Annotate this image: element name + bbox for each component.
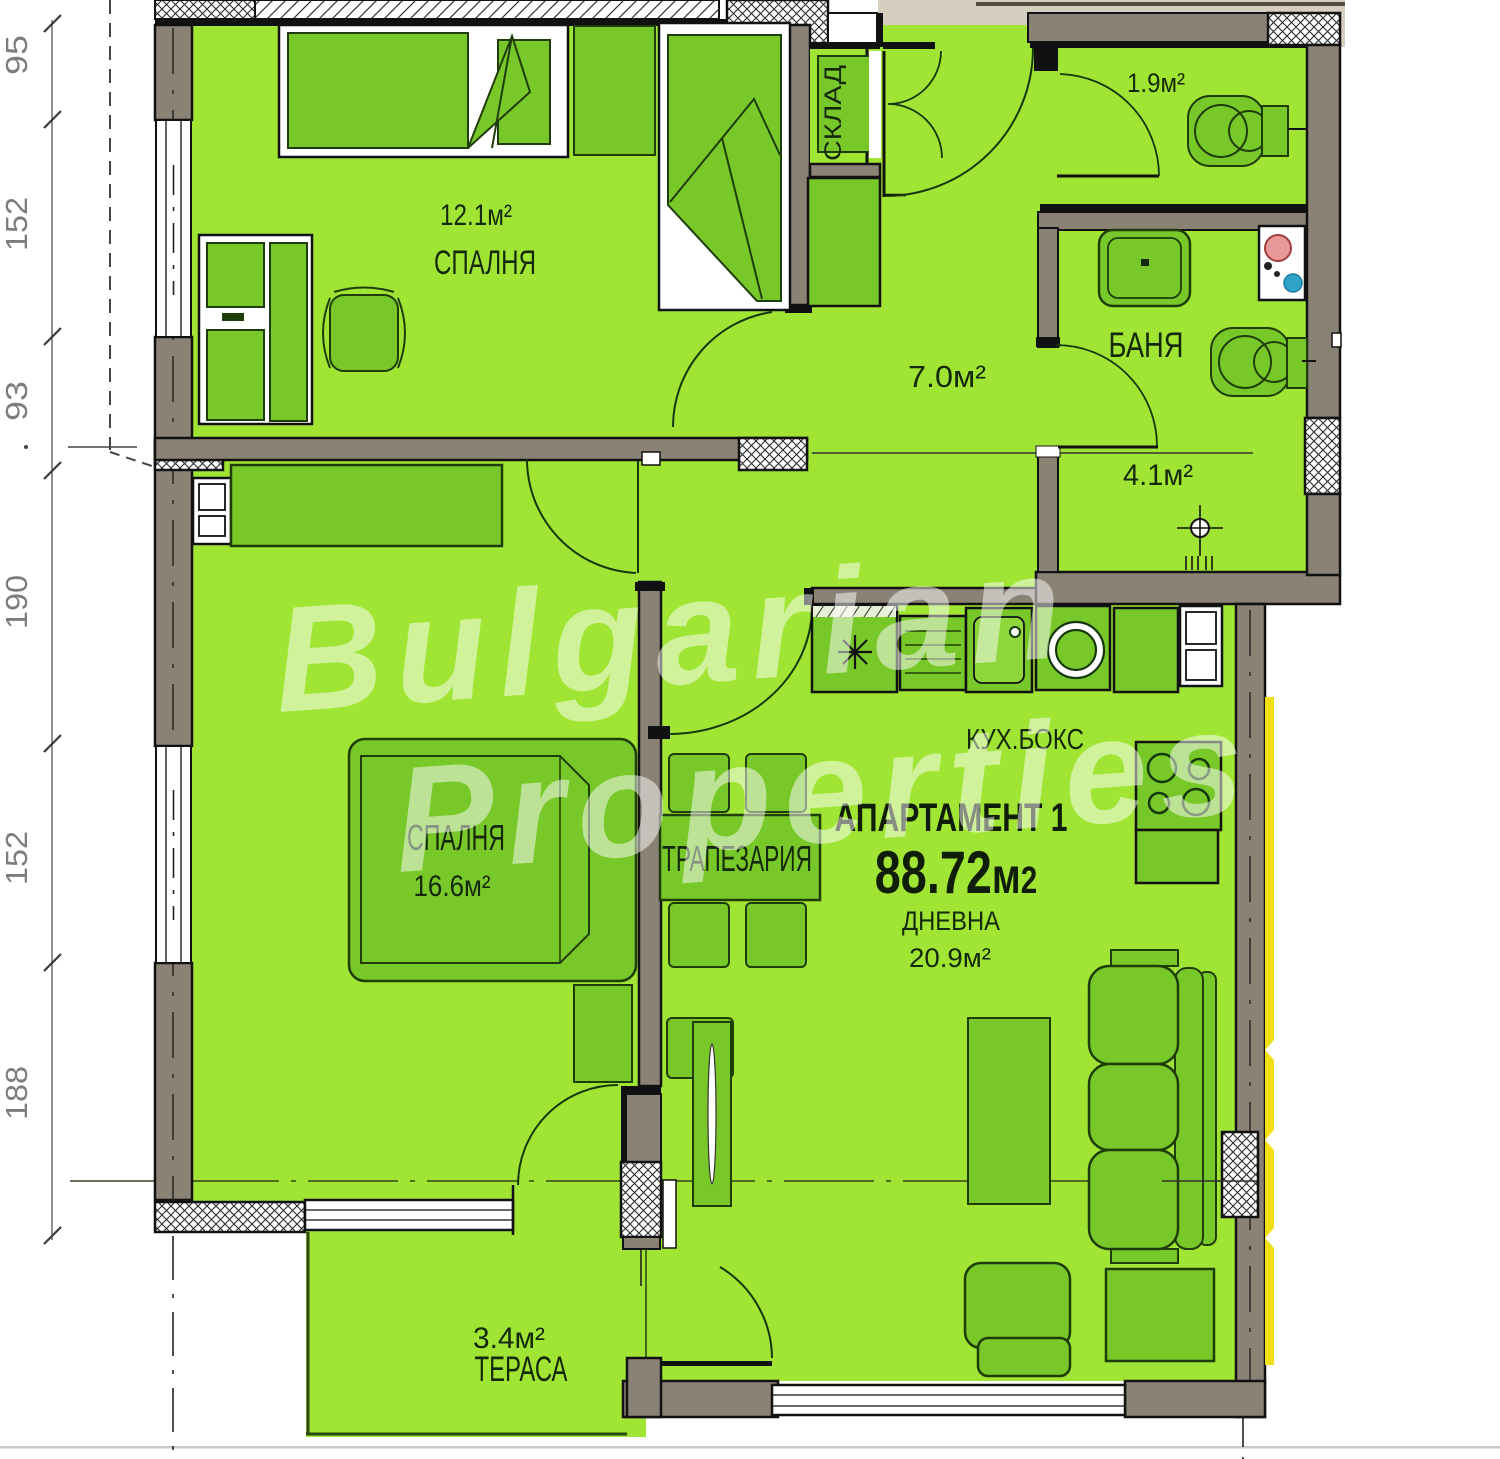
svg-text:20.9м²: 20.9м² xyxy=(909,943,991,973)
svg-text:95: 95 xyxy=(0,35,34,75)
svg-text:152: 152 xyxy=(0,197,34,251)
svg-text:ТЕРАСА: ТЕРАСА xyxy=(475,1350,568,1389)
svg-text:ДНЕВНА: ДНЕВНА xyxy=(902,906,1000,936)
svg-text:1.9м²: 1.9м² xyxy=(1127,68,1185,98)
svg-text:СПАЛНЯ: СПАЛНЯ xyxy=(434,244,536,282)
svg-text:БАНЯ: БАНЯ xyxy=(1109,326,1184,365)
svg-text:188: 188 xyxy=(0,1066,34,1120)
svg-text:СКЛАД: СКЛАД xyxy=(820,65,847,161)
svg-text:7.0м²: 7.0м² xyxy=(908,359,986,394)
svg-text:93: 93 xyxy=(0,381,34,421)
svg-text:152: 152 xyxy=(0,831,34,885)
svg-text:190: 190 xyxy=(0,575,34,629)
svg-text:4.1м²: 4.1м² xyxy=(1123,459,1193,492)
svg-text:12.1м²: 12.1м² xyxy=(440,199,512,232)
